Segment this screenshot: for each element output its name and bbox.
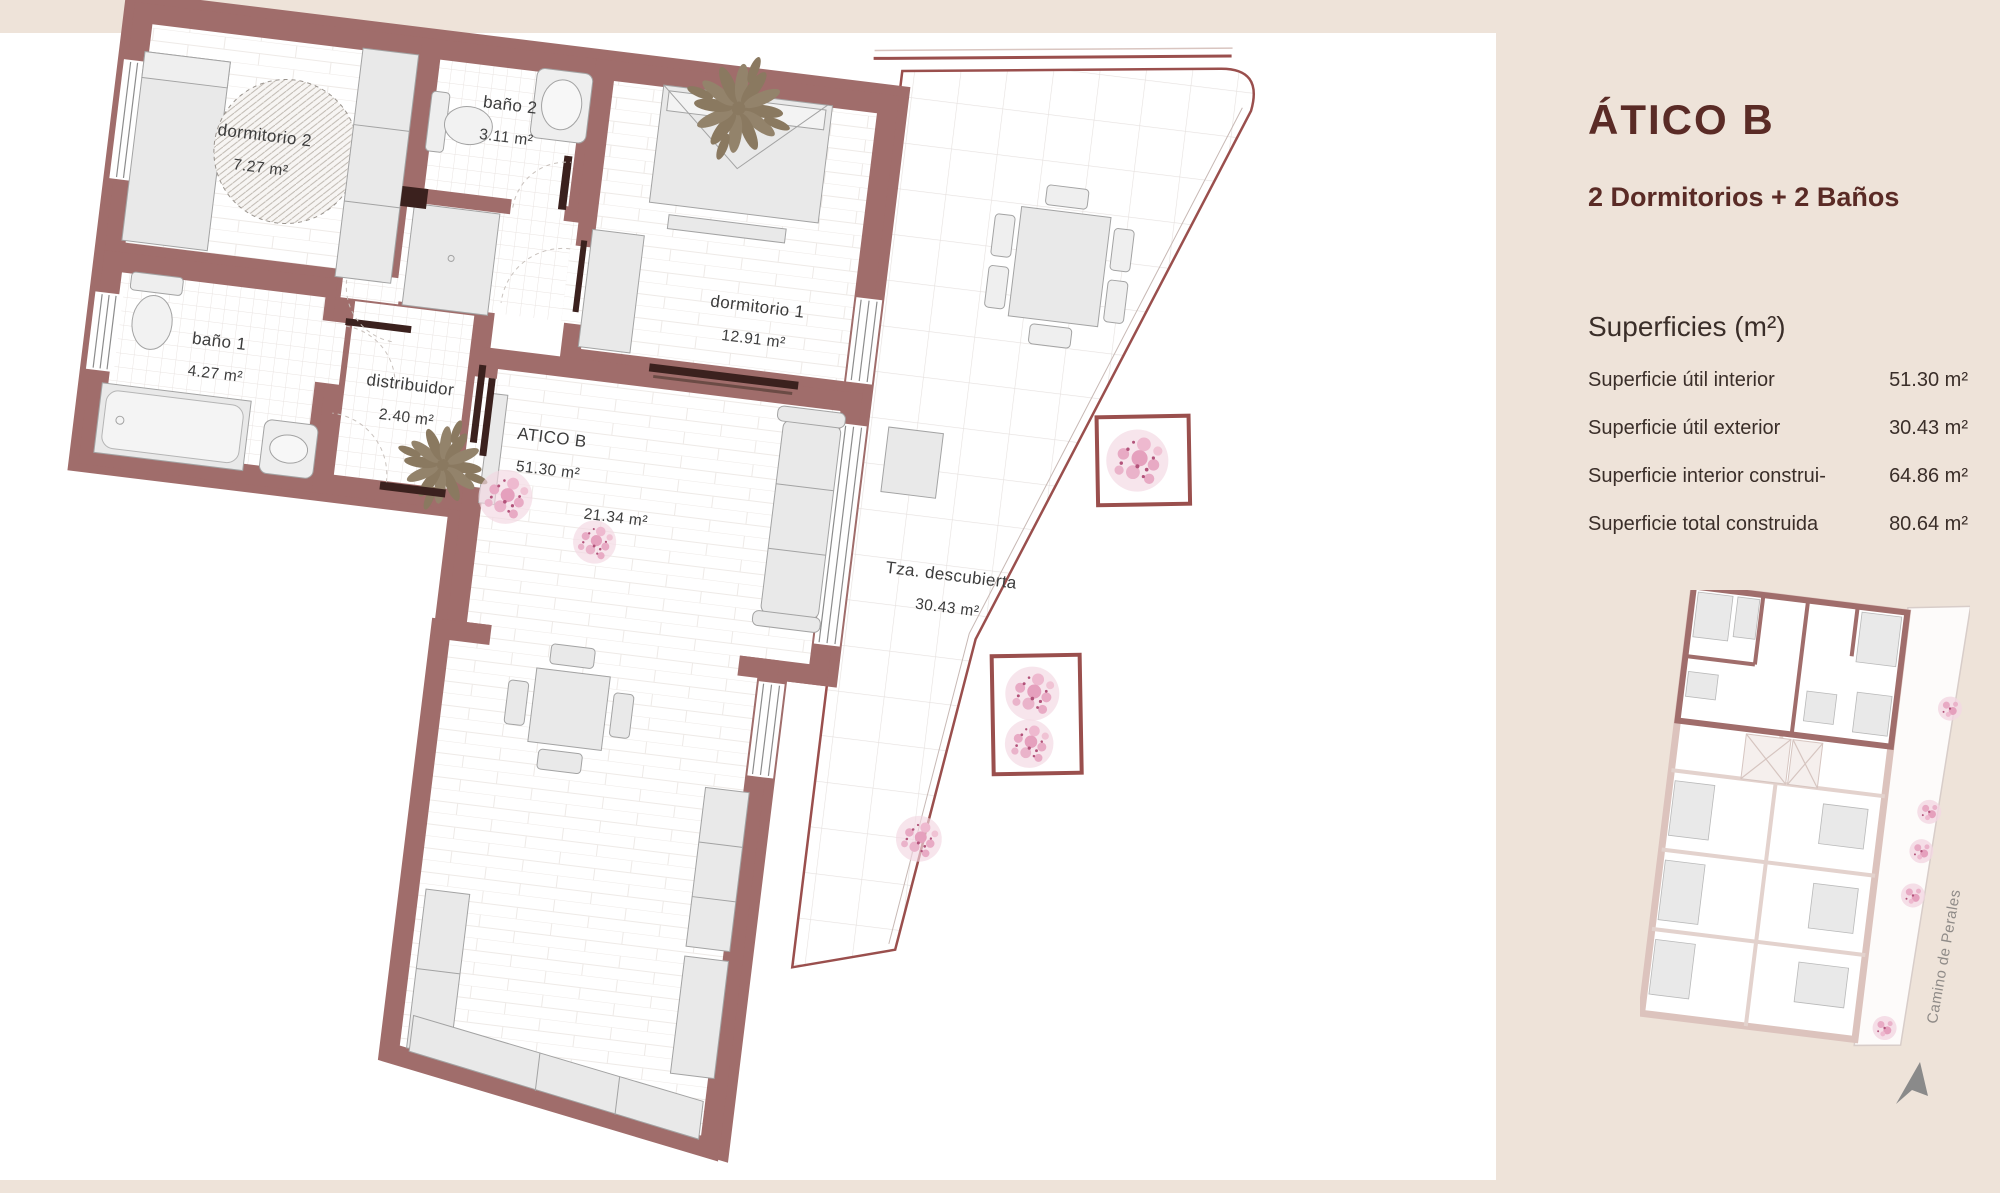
superficie-label: Superficie interior construi-	[1588, 465, 1826, 488]
superficies-heading: Superficies (m²)	[1588, 311, 1968, 343]
page-title: ÁTICO B	[1588, 96, 1968, 144]
floor-plan-drawing: dormitorio 2 7.27 m² baño 2 3.11 m² dorm…	[0, 0, 1496, 1193]
superficie-value: 51.30 m²	[1889, 369, 1968, 392]
superficie-row: Superficie total construida 80.64 m²	[1588, 513, 1968, 536]
superficie-value: 30.43 m²	[1889, 417, 1968, 440]
superficie-row: Superficie interior construi- 64.86 m²	[1588, 465, 1968, 488]
superficie-label: Superficie total construida	[1588, 513, 1818, 536]
superficies-table: Superficie útil interior 51.30 m² Superf…	[1588, 369, 1968, 536]
superficie-row: Superficie útil exterior 30.43 m²	[1588, 417, 1968, 440]
superficie-label: Superficie útil interior	[1588, 369, 1775, 392]
page: dormitorio 2 7.27 m² baño 2 3.11 m² dorm…	[0, 0, 2000, 1193]
site-key-plan	[1640, 590, 1970, 1100]
unit-subtitle: 2 Dormitorios + 2 Baños	[1588, 182, 1968, 213]
north-arrow-icon	[1890, 1058, 1938, 1110]
superficie-label: Superficie útil exterior	[1588, 417, 1780, 440]
superficie-row: Superficie útil interior 51.30 m²	[1588, 369, 1968, 392]
info-panel: ÁTICO B 2 Dormitorios + 2 Baños Superfic…	[1588, 0, 1968, 561]
superficie-value: 80.64 m²	[1889, 513, 1968, 536]
superficie-value: 64.86 m²	[1889, 465, 1968, 488]
